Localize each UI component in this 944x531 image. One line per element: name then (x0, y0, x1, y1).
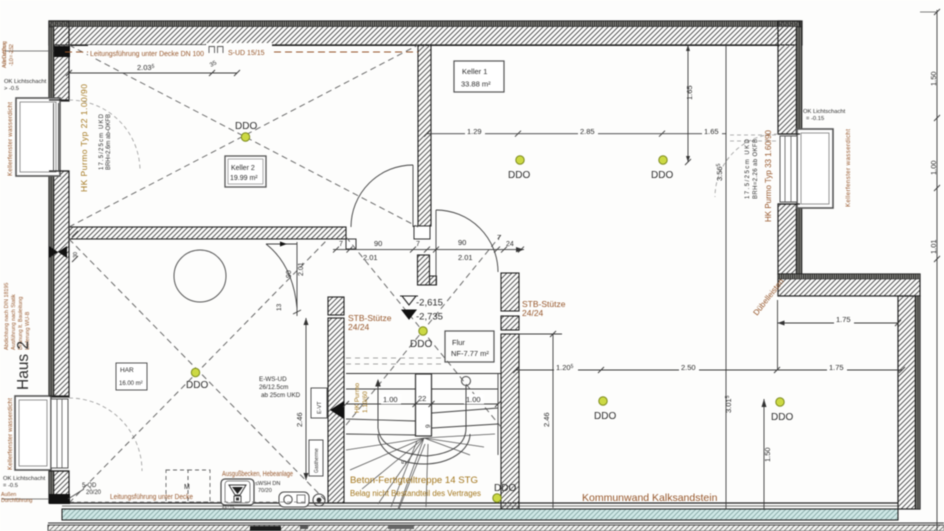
svg-text:HK Purmo Typ 22 1.00/90: HK Purmo Typ 22 1.00/90 (79, 84, 89, 192)
svg-text:HAR: HAR (120, 367, 134, 374)
svg-text:24/24: 24/24 (522, 308, 544, 318)
svg-text:Kommunwand Kalksandstein: Kommunwand Kalksandstein (582, 492, 718, 504)
svg-text:Ausgußbecken, Hebeanlage: Ausgußbecken, Hebeanlage (222, 469, 293, 478)
svg-text:90: 90 (458, 238, 466, 247)
svg-text:1.65: 1.65 (704, 127, 719, 136)
svg-text:2.01: 2.01 (298, 262, 305, 276)
svg-text:1.29: 1.29 (467, 127, 482, 136)
svg-text:17.5/25cm UKD: 17.5/25cm UKD (745, 138, 751, 199)
svg-text:Gastherme: Gastherme (314, 448, 320, 473)
svg-text:ab 25cm UKD: ab 25cm UKD (261, 392, 301, 399)
svg-text:22: 22 (418, 394, 426, 403)
svg-text:= -0.5: = -0.5 (3, 483, 18, 489)
svg-text:1.50: 1.50 (929, 71, 938, 86)
svg-text:Leitungsführung unter Decke: Leitungsführung unter Decke (110, 492, 193, 501)
svg-text:90: 90 (286, 270, 293, 278)
svg-text:Kellerfenster wasserdicht: Kellerfenster wasserdicht (7, 102, 14, 176)
svg-text:2.46: 2.46 (295, 412, 304, 427)
svg-text:Kellerfenster wasserdicht: Kellerfenster wasserdicht (7, 398, 14, 470)
svg-text:20/20: 20/20 (86, 490, 102, 496)
svg-text:1.01: 1.01 (929, 239, 938, 254)
svg-text:OK Lichtschacht: OK Lichtschacht (803, 109, 846, 115)
svg-text:Außen Durchführung: Außen Durchführung (2, 41, 8, 68)
svg-text:90: 90 (374, 239, 382, 248)
svg-text:Haus 2: Haus 2 (15, 341, 32, 390)
svg-text:M: M (184, 484, 190, 491)
svg-text:7: 7 (416, 241, 420, 248)
svg-text:DDO: DDO (410, 339, 432, 350)
svg-text:1.75: 1.75 (829, 363, 844, 372)
svg-text:1.75: 1.75 (836, 315, 851, 324)
svg-text:DDO: DDO (235, 121, 257, 132)
svg-text:70/20: 70/20 (258, 488, 272, 494)
svg-text:2.85: 2.85 (580, 127, 595, 136)
svg-text:DDO: DDO (594, 411, 616, 422)
svg-text:24/24: 24/24 (348, 322, 370, 332)
svg-text:9: 9 (425, 424, 432, 428)
svg-text:1.00: 1.00 (383, 395, 398, 404)
svg-text:1.00: 1.00 (929, 160, 938, 175)
svg-text:Belag nicht Bestandteil des Ve: Belag nicht Bestandteil des Vertrages (350, 489, 481, 498)
svg-text:Abdichtung nach DIN 18195: Abdichtung nach DIN 18195 (4, 283, 10, 350)
svg-text:33.88 m²: 33.88 m² (461, 80, 491, 89)
svg-text:5: 5 (401, 460, 408, 464)
svg-text:Keller 2: Keller 2 (231, 165, 255, 172)
svg-text:2.50: 2.50 (681, 363, 696, 372)
svg-text:BRH=2.6m ab-OKFB: BRH=2.6m ab-OKFB (106, 114, 112, 170)
svg-text:= -0.15: = -0.15 (806, 116, 824, 122)
svg-text:BRH=2.26 ab OKFB: BRH=2.26 ab OKFB (753, 139, 759, 199)
svg-text:1.50: 1.50 (763, 447, 772, 462)
svg-text:DDO: DDO (494, 483, 516, 494)
svg-text:2.01: 2.01 (363, 253, 378, 262)
svg-text:NF-7.77 m²: NF-7.77 m² (451, 349, 489, 358)
svg-text:E-WS-UD: E-WS-UD (259, 376, 287, 383)
svg-text:2.46: 2.46 (542, 412, 551, 427)
svg-text:1.00: 1.00 (466, 395, 481, 404)
svg-text:-2,615: -2,615 (416, 298, 443, 309)
svg-text:-1.0 = -2.52: -1.0 = -2.52 (9, 44, 15, 66)
svg-text:Durchführung: Durchführung (1, 498, 33, 504)
svg-text:17.5/25cm UKD: 17.5/25cm UKD (99, 113, 105, 170)
svg-text:HK Purmo Typ 33 1.60/90: HK Purmo Typ 33 1.60/90 (764, 130, 773, 222)
svg-text:30: 30 (73, 252, 79, 258)
svg-text:Beton-Fertigteiltreppe 14 STG: Beton-Fertigteiltreppe 14 STG (350, 475, 478, 485)
svg-text:1.65: 1.65 (685, 85, 694, 100)
svg-text:26/12.5cm: 26/12.5cm (259, 384, 288, 391)
svg-text:5-QD: 5-QD (82, 483, 97, 489)
svg-text:Leitungsführung unter Decke DN: Leitungsführung unter Decke DN 100 (90, 49, 204, 58)
svg-text:Keller 1: Keller 1 (462, 67, 487, 76)
svg-text:DDO: DDO (771, 412, 793, 423)
svg-text:Kellerfenster wasserdicht: Kellerfenster wasserdicht (845, 129, 852, 207)
svg-text:HK Purmo: HK Purmo (354, 383, 361, 413)
svg-text:1.10/60: 1.10/60 (362, 391, 369, 413)
svg-text:DDO: DDO (508, 170, 530, 181)
svg-text:E-VT: E-VT (317, 401, 323, 414)
svg-text:OK Lichtschacht: OK Lichtschacht (3, 476, 46, 482)
svg-text:19.99 m²: 19.99 m² (230, 175, 258, 182)
svg-text:S-UD 15/15: S-UD 15/15 (228, 50, 265, 57)
svg-text:Flur: Flur (452, 338, 465, 347)
svg-text:DDO: DDO (651, 170, 673, 181)
svg-text:-2,735: -2,735 (416, 312, 443, 323)
svg-text:> -0.5: > -0.5 (4, 86, 19, 92)
svg-text:7: 7 (497, 235, 501, 242)
svg-text:24: 24 (506, 241, 514, 248)
svg-text:13: 13 (276, 303, 283, 311)
svg-text:2.01: 2.01 (458, 253, 473, 262)
svg-text:DDO: DDO (186, 380, 208, 391)
svg-text:OK Lichtschacht: OK Lichtschacht (4, 79, 47, 85)
svg-text:21=TL: 21=TL (222, 504, 235, 509)
svg-text:7: 7 (339, 241, 343, 248)
svg-text:16.00 m²: 16.00 m² (119, 381, 143, 387)
svg-text:≤WSH DN: ≤WSH DN (255, 481, 280, 487)
